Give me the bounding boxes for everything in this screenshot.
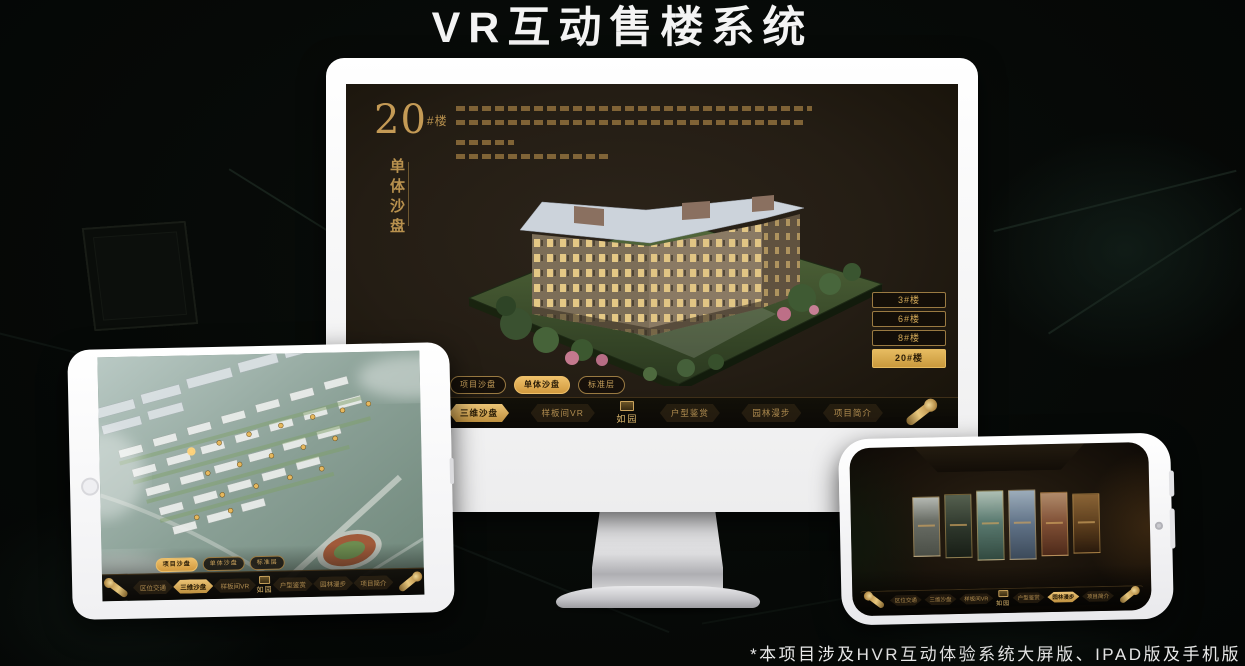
subtab-standard-floor[interactable]: 标准层: [250, 556, 285, 571]
subtab-single-sandbox[interactable]: 单体沙盘: [203, 556, 245, 571]
background-foliage: [965, 120, 1245, 380]
nav-item-unit-plans[interactable]: 户型鉴赏: [660, 404, 720, 422]
scroll-icon[interactable]: [1119, 587, 1138, 604]
camera-icon: [1155, 522, 1163, 530]
floor-button-3[interactable]: 3#楼: [872, 292, 946, 308]
phone-screen: 区位交通 三维沙盘 样板间VR 如园 户型鉴赏 园林漫步 项目简介: [849, 442, 1151, 616]
subtitle-rule: [408, 162, 409, 226]
logo-text: 如园: [616, 412, 638, 425]
brand-logo: 如园: [256, 575, 272, 594]
nav-item-3d-sandbox[interactable]: 三维沙盘: [924, 594, 956, 606]
description-line: [456, 140, 514, 145]
nav-item-location[interactable]: 区位交通: [890, 594, 922, 606]
building-suffix: #楼: [427, 114, 448, 128]
seal-icon: [998, 589, 1008, 596]
scroll-icon[interactable]: [865, 592, 885, 609]
description-line: [456, 106, 812, 111]
background-plaque: [82, 221, 199, 331]
camera-icon: [81, 477, 99, 495]
monitor-subtabs: 项目沙盘 单体沙盘 标准层: [450, 376, 625, 394]
subtab-project-sandbox[interactable]: 项目沙盘: [156, 557, 198, 572]
nav-item-3d-sandbox[interactable]: 三维沙盘: [173, 579, 213, 594]
pavilion-roof-silhouette: [913, 443, 1085, 473]
page-title: VR互动售楼系统: [0, 0, 1245, 56]
tablet-navbar: 区位交通 三维沙盘 样板间VR 如园 户型鉴赏 园林漫步 项目简介: [102, 568, 424, 602]
monitor-stand-base: [556, 586, 760, 608]
nav-item-location[interactable]: 区位交通: [133, 580, 173, 595]
logo-text: 如园: [996, 597, 1010, 606]
vr-scene-gallery: [912, 483, 1094, 567]
nav-item-showroom-vr[interactable]: 样板间VR: [959, 593, 993, 605]
nav-item-showroom-vr[interactable]: 样板间VR: [213, 578, 256, 593]
nav-item-garden-walk[interactable]: 园林漫步: [1047, 591, 1079, 603]
tablet-side-button: [450, 458, 455, 484]
tablet-subtabs: 项目沙盘 单体沙盘 标准层: [156, 556, 285, 573]
nav-item-showroom-vr[interactable]: 样板间VR: [531, 404, 595, 422]
floor-button-8[interactable]: 8#楼: [872, 330, 946, 346]
map-road-line: [229, 168, 332, 233]
monitor-stand: [592, 510, 723, 590]
tablet-device: 项目沙盘 单体沙盘 标准层 区位交通 三维沙盘 样板间VR 如园 户型鉴赏 园林…: [67, 342, 455, 620]
description-line: [456, 120, 806, 125]
nav-item-project-intro[interactable]: 项目简介: [1082, 590, 1114, 602]
floor-selector: 3#楼 6#楼 8#楼 20#楼: [872, 292, 946, 368]
floor-button-20[interactable]: 20#楼: [872, 349, 946, 368]
scene-card[interactable]: [944, 494, 972, 559]
phone-side-button: [1169, 470, 1175, 496]
screen-subtitle-vertical: 单体沙盘: [386, 158, 407, 238]
nav-item-unit-plans[interactable]: 户型鉴赏: [1013, 592, 1045, 604]
scroll-icon[interactable]: [397, 572, 420, 593]
scene-card[interactable]: [976, 490, 1004, 561]
floor-button-6[interactable]: 6#楼: [872, 311, 946, 327]
footnote: *本项目涉及HVR互动体验系统大屏版、IPAD版及手机版: [750, 640, 1241, 665]
brand-logo: 如园: [616, 401, 638, 425]
nav-item-3d-sandbox[interactable]: 三维沙盘: [449, 404, 509, 422]
scroll-icon[interactable]: [905, 400, 936, 427]
building-number: 20: [374, 97, 427, 143]
scene-card[interactable]: [1072, 493, 1100, 554]
phone-side-button: [1170, 508, 1176, 548]
subtab-single-sandbox[interactable]: 单体沙盘: [514, 376, 570, 394]
phone-device: 区位交通 三维沙盘 样板间VR 如园 户型鉴赏 园林漫步 项目简介: [838, 433, 1174, 626]
scene-card[interactable]: [1008, 489, 1036, 560]
subtab-standard-floor[interactable]: 标准层: [578, 376, 625, 394]
screen-title: 20#楼: [374, 100, 448, 140]
tablet-screen: 项目沙盘 单体沙盘 标准层 区位交通 三维沙盘 样板间VR 如园 户型鉴赏 园林…: [97, 351, 424, 602]
nav-item-garden-walk[interactable]: 园林漫步: [741, 404, 801, 422]
scene-card[interactable]: [1040, 492, 1068, 557]
nav-item-garden-walk[interactable]: 园林漫步: [313, 576, 353, 591]
scene-card[interactable]: [912, 496, 940, 557]
nav-item-project-intro[interactable]: 项目简介: [353, 575, 393, 590]
nav-item-unit-plans[interactable]: 户型鉴赏: [273, 577, 313, 592]
scroll-icon[interactable]: [106, 578, 129, 598]
building-model-render: [454, 146, 894, 386]
stage: VR互动售楼系统 20#楼 单体沙盘: [0, 0, 1245, 666]
brand-logo: 如园: [996, 589, 1010, 606]
nav-item-project-intro[interactable]: 项目简介: [823, 404, 883, 422]
logo-text: 如园: [256, 584, 272, 594]
subtab-project-sandbox[interactable]: 项目沙盘: [450, 376, 506, 394]
seal-icon: [259, 575, 270, 583]
seal-icon: [620, 401, 634, 411]
